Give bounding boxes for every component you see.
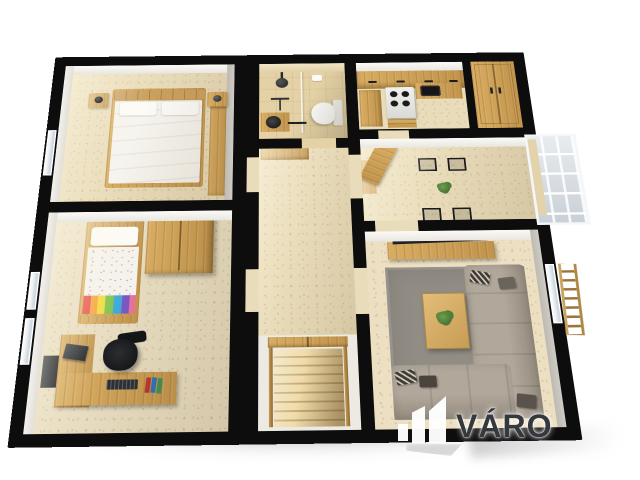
room-dining xyxy=(360,137,536,221)
burner xyxy=(401,91,409,97)
opening-dining-living xyxy=(375,220,419,231)
hallway-light xyxy=(258,148,357,336)
potted-plant xyxy=(437,182,450,192)
drawer-unit xyxy=(388,119,417,128)
door-split xyxy=(307,337,309,347)
doorway-kids xyxy=(245,269,258,312)
burner xyxy=(402,100,410,106)
room-bedroom xyxy=(50,64,235,202)
kids-light xyxy=(23,210,232,434)
city-buildings-logo-icon xyxy=(398,396,454,448)
burner xyxy=(390,100,398,106)
stairs-steps xyxy=(274,348,346,427)
burner xyxy=(390,91,398,97)
wall-face xyxy=(360,137,526,148)
potted-plant xyxy=(436,311,452,325)
wall-face xyxy=(259,63,345,72)
cabinet-handle xyxy=(368,81,376,83)
bathroom-shadow xyxy=(259,63,348,139)
cushion xyxy=(419,376,437,388)
bedroom-light xyxy=(50,64,235,202)
room-kitchen xyxy=(356,62,470,130)
room-staircase xyxy=(258,334,361,431)
room-kids-study xyxy=(23,210,232,434)
wall-face xyxy=(356,62,463,72)
logo-block xyxy=(429,396,446,443)
doorway-dining xyxy=(349,155,363,199)
cabinet-handle xyxy=(449,80,457,82)
kitchen-sink xyxy=(420,85,441,96)
wall-face xyxy=(365,230,540,242)
doorway-bathroom xyxy=(302,138,337,148)
room-bathroom xyxy=(259,63,348,139)
floor-plan-render: VÁRO xyxy=(0,0,640,480)
floor-plan xyxy=(7,52,582,448)
doorway-kitchen xyxy=(378,130,409,139)
handrail xyxy=(269,348,273,428)
counter xyxy=(359,90,383,127)
stove xyxy=(385,87,416,118)
cabinet-handle xyxy=(424,80,432,82)
cushion xyxy=(517,393,537,409)
doorway-living xyxy=(354,268,369,314)
room-living xyxy=(365,230,567,430)
logo-block xyxy=(412,406,425,443)
cushion xyxy=(497,277,516,290)
cabinet-handle xyxy=(396,81,404,83)
watermark-text: VÁRO xyxy=(456,408,552,445)
doorway-bedroom xyxy=(247,157,259,192)
logo-block xyxy=(398,424,408,441)
room-hallway xyxy=(258,148,357,336)
